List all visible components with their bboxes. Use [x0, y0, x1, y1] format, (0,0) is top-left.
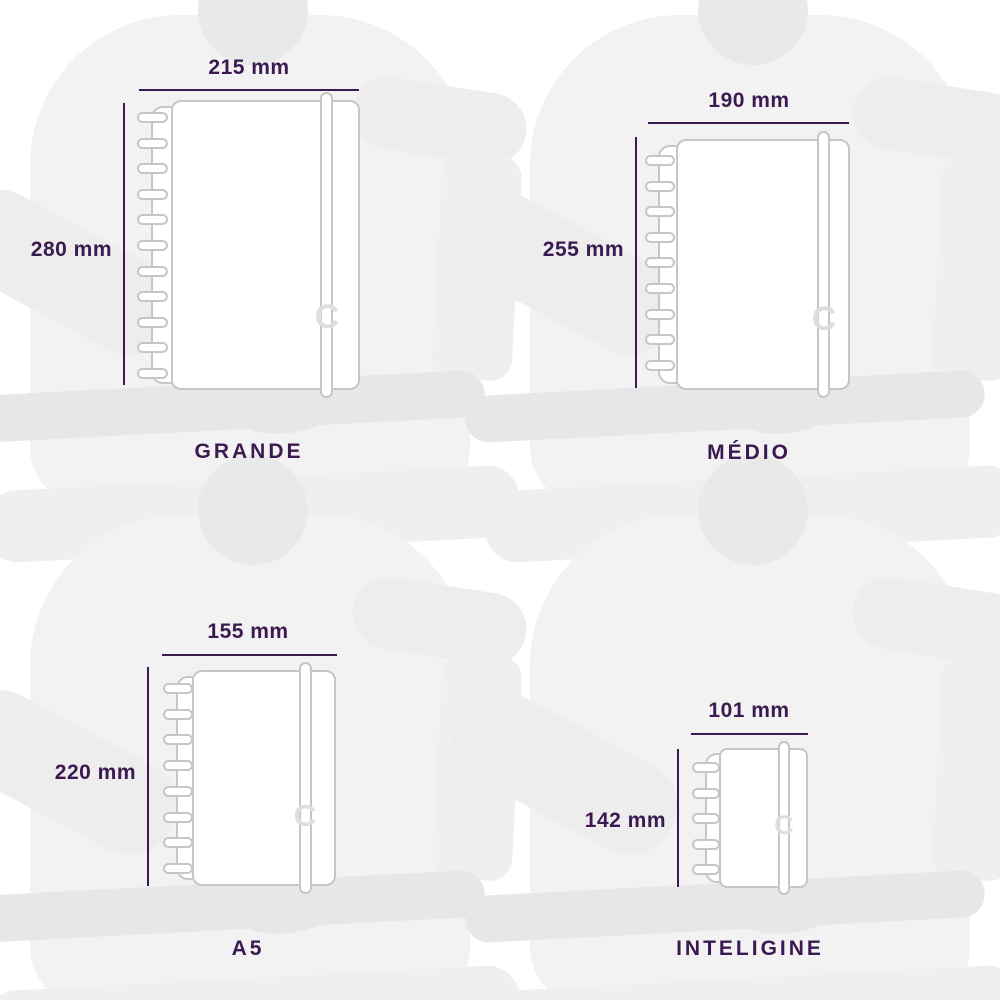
- binder-ring: [137, 291, 168, 302]
- binder-ring: [137, 368, 168, 379]
- binder-ring: [645, 155, 675, 166]
- elastic-band: [320, 92, 333, 398]
- size-panel-medio: 190 mm 255 mm C MÉDIO: [500, 0, 1000, 500]
- size-panel-a5: 155 mm 220 mm C A5: [0, 500, 500, 1000]
- binder-ring: [645, 232, 675, 243]
- binder-ring: [137, 138, 168, 149]
- binder-ring: [645, 257, 675, 268]
- binder-ring: [137, 214, 168, 225]
- binder-ring: [692, 864, 720, 875]
- c-logo-icon: C: [309, 300, 345, 334]
- binder-ring: [137, 240, 168, 251]
- binder-ring: [645, 181, 675, 192]
- c-logo-icon: C: [769, 812, 799, 839]
- binder-ring: [163, 812, 193, 823]
- binder-ring: [163, 786, 193, 797]
- c-logo-icon: C: [806, 302, 842, 336]
- binder-ring: [163, 863, 193, 874]
- notebook-size-chart: 215 mm 280 mm C GRANDE 190 mm 255 mm C M…: [0, 0, 1000, 1000]
- binder-ring: [692, 788, 720, 799]
- notebook-cover: [192, 670, 336, 886]
- elastic-band: [817, 131, 830, 398]
- binder-ring: [163, 683, 193, 694]
- binder-ring: [137, 112, 168, 123]
- binder-ring: [137, 317, 168, 328]
- binder-ring: [137, 342, 168, 353]
- size-panel-grande: 215 mm 280 mm C GRANDE: [0, 0, 500, 500]
- binder-ring: [137, 266, 168, 277]
- binder-ring: [163, 709, 193, 720]
- c-logo-icon: C: [288, 800, 322, 831]
- binder-ring: [645, 206, 675, 217]
- binder-ring: [692, 813, 720, 824]
- elastic-band: [299, 662, 312, 894]
- binder-ring: [645, 309, 675, 320]
- binder-ring: [645, 283, 675, 294]
- binder-ring: [645, 334, 675, 345]
- binder-ring: [692, 762, 720, 773]
- binder-ring: [163, 837, 193, 848]
- binder-ring: [163, 760, 193, 771]
- binder-ring: [163, 734, 193, 745]
- binder-ring: [645, 360, 675, 371]
- binder-ring: [137, 163, 168, 174]
- binder-ring: [137, 189, 168, 200]
- binder-ring: [692, 839, 720, 850]
- size-panel-inteligine: 101 mm 142 mm C INTELIGINE: [500, 500, 1000, 1000]
